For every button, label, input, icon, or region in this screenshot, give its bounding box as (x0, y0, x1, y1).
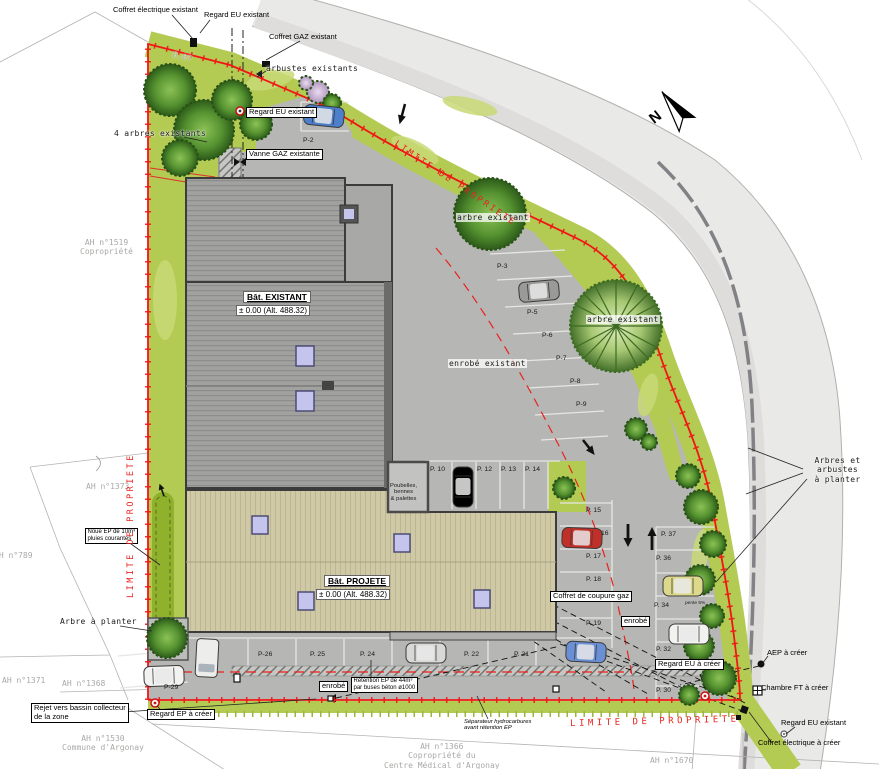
existing-building (186, 178, 392, 488)
car (566, 641, 607, 663)
north-arrow (653, 85, 696, 132)
skylight (298, 592, 314, 610)
car (518, 279, 560, 302)
palm-tree (570, 280, 662, 372)
skylight (296, 391, 314, 411)
coffret-electrique-symbol (190, 38, 197, 47)
site-plan: Coffret électrique existantRegard EU exi… (0, 0, 879, 769)
car (303, 104, 345, 128)
skylight (252, 516, 268, 534)
projected-building (186, 490, 556, 640)
skylight (394, 534, 410, 552)
car (663, 576, 703, 596)
car (453, 467, 473, 507)
car (669, 624, 709, 644)
waste-enclosure (388, 462, 428, 512)
retention-strip (232, 666, 732, 676)
skylight (344, 209, 354, 219)
site-plan-canvas (0, 0, 879, 769)
van (195, 638, 219, 677)
skylight (474, 590, 490, 608)
car (144, 665, 185, 686)
bottom-verge (148, 701, 740, 713)
car (562, 527, 603, 548)
car (406, 643, 446, 663)
coffret-gaz-symbol (262, 61, 270, 67)
tree-to-plant (147, 618, 187, 658)
chambre-ft-symbol (753, 686, 762, 695)
skylight (296, 346, 314, 366)
